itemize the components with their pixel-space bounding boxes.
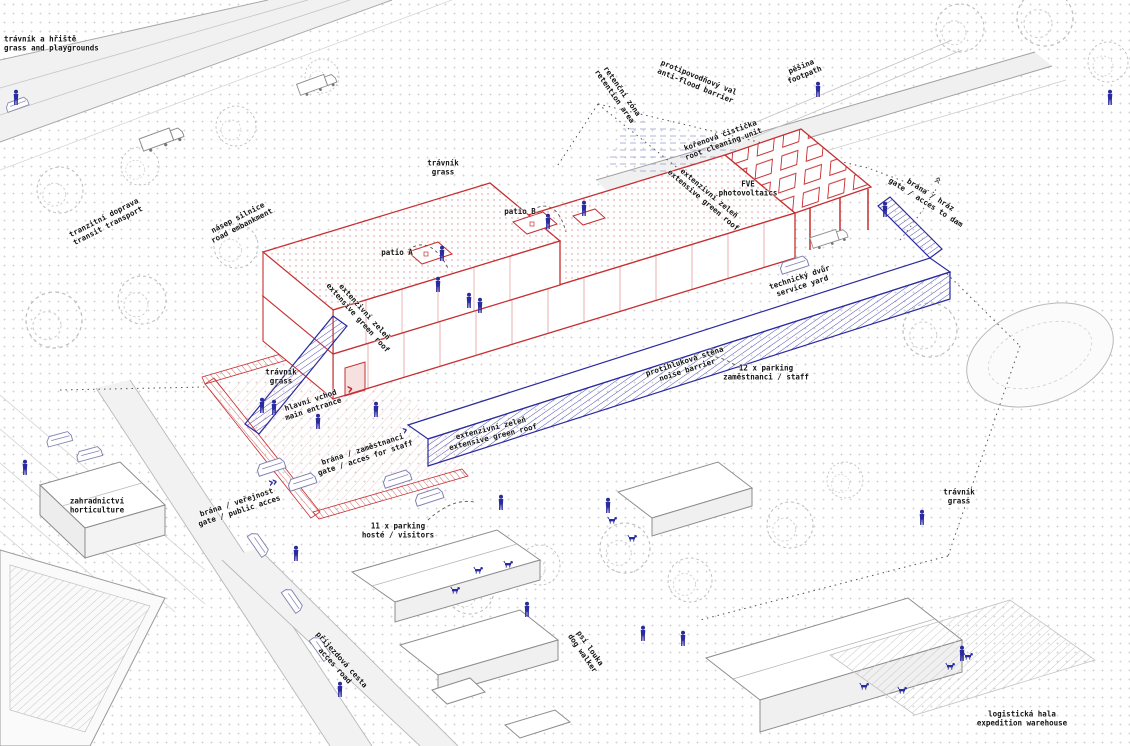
main-building bbox=[263, 129, 871, 399]
entrance-door bbox=[345, 362, 365, 396]
village-sheds bbox=[352, 462, 752, 738]
illustration bbox=[0, 0, 1130, 746]
site-plan-canvas: trávník a hřištěgrass and playgroundstra… bbox=[0, 0, 1130, 746]
transit-road bbox=[0, 0, 452, 170]
warehouse-building bbox=[706, 598, 1095, 732]
horticulture-building bbox=[40, 462, 165, 558]
large-building-sw bbox=[0, 550, 165, 746]
